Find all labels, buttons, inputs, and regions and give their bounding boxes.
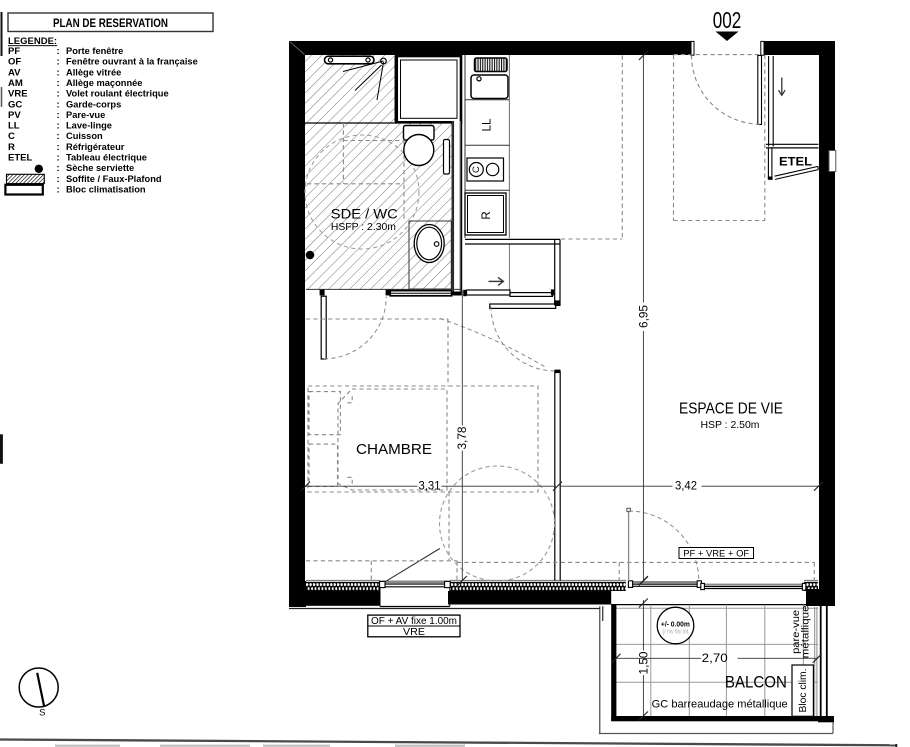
svg-text:3,31: 3,31 bbox=[419, 481, 441, 493]
svg-text:Réfrigérateur: Réfrigérateur bbox=[66, 142, 125, 152]
svg-text:S: S bbox=[39, 708, 45, 719]
svg-text:Allège vitrée: Allège vitrée bbox=[66, 67, 121, 77]
svg-text:BALCON: BALCON bbox=[725, 673, 787, 691]
svg-text:AV: AV bbox=[8, 67, 21, 78]
svg-text:ESPACE DE VIE: ESPACE DE VIE bbox=[679, 401, 783, 418]
svg-text:Lave-linge: Lave-linge bbox=[66, 121, 112, 131]
svg-text:Porte fenêtre: Porte fenêtre bbox=[66, 46, 123, 56]
svg-text:métallique: métallique bbox=[800, 605, 812, 658]
svg-text:VRE: VRE bbox=[403, 627, 425, 638]
svg-text:PV: PV bbox=[8, 110, 21, 121]
svg-text:2,70: 2,70 bbox=[702, 653, 728, 665]
svg-text::: : bbox=[57, 131, 60, 142]
svg-text:Bloc climatisation: Bloc climatisation bbox=[66, 184, 146, 194]
svg-text:GC barreaudage métallique: GC barreaudage métallique bbox=[652, 699, 788, 711]
svg-text::: : bbox=[57, 184, 60, 195]
svg-text:3,42: 3,42 bbox=[675, 481, 697, 493]
svg-text::: : bbox=[57, 99, 60, 110]
svg-text::: : bbox=[57, 110, 60, 121]
svg-text:PLAN DE RESERVATION: PLAN DE RESERVATION bbox=[53, 18, 168, 30]
svg-text:LL: LL bbox=[8, 121, 20, 132]
svg-text::: : bbox=[57, 153, 60, 164]
svg-text:Pare-vue: Pare-vue bbox=[66, 110, 105, 120]
svg-text:PF: PF bbox=[8, 46, 20, 57]
svg-text:VRE: VRE bbox=[8, 89, 28, 100]
svg-text::: : bbox=[57, 142, 60, 153]
svg-text:Cuisson: Cuisson bbox=[66, 131, 103, 141]
svg-text::: : bbox=[57, 67, 60, 78]
svg-text::: : bbox=[57, 121, 60, 132]
svg-text:OF + AV fixe 1.00m: OF + AV fixe 1.00m bbox=[371, 616, 457, 627]
svg-text::: : bbox=[57, 78, 60, 89]
svg-text:6,95: 6,95 bbox=[638, 305, 650, 328]
svg-text:Bloc clim.: Bloc clim. bbox=[797, 669, 809, 713]
svg-text:AM: AM bbox=[8, 78, 23, 89]
svg-text::: : bbox=[57, 163, 60, 174]
svg-text:C: C bbox=[471, 166, 482, 173]
svg-text:002: 002 bbox=[713, 7, 742, 33]
svg-text::: : bbox=[57, 46, 60, 57]
svg-text:+/- 0.00m: +/- 0.00m bbox=[661, 619, 690, 628]
svg-text:C: C bbox=[8, 131, 15, 142]
svg-text:ETEL: ETEL bbox=[8, 153, 32, 164]
svg-text:CHAMBRE: CHAMBRE bbox=[356, 441, 432, 458]
svg-text:GC: GC bbox=[8, 99, 22, 110]
svg-text:Fenêtre ouvrant à la française: Fenêtre ouvrant à la française bbox=[66, 57, 198, 67]
svg-text:3,78: 3,78 bbox=[457, 427, 469, 450]
svg-text:ETEL: ETEL bbox=[779, 155, 812, 169]
svg-text:Tableau électrique: Tableau électrique bbox=[66, 153, 147, 163]
svg-text:Allège maçonnée: Allège maçonnée bbox=[66, 78, 142, 88]
svg-text:Volet roulant électrique: Volet roulant électrique bbox=[66, 89, 169, 99]
svg-text:HSFP : 2.30m: HSFP : 2.30m bbox=[331, 222, 396, 233]
svg-text:LL: LL bbox=[481, 118, 493, 132]
svg-text:HSP : 2.50m: HSP : 2.50m bbox=[701, 419, 760, 431]
svg-text:Soffite / Faux-Plafond: Soffite / Faux-Plafond bbox=[66, 174, 162, 184]
svg-text::: : bbox=[57, 89, 60, 100]
svg-text:R: R bbox=[8, 142, 15, 153]
svg-text:R: R bbox=[481, 211, 493, 219]
svg-text:Garde-corps: Garde-corps bbox=[66, 99, 121, 109]
svg-text:SDE / WC: SDE / WC bbox=[331, 205, 398, 221]
svg-text:1,50: 1,50 bbox=[638, 652, 650, 675]
svg-text:(/ niv fini int: (/ niv fini int bbox=[662, 628, 688, 635]
svg-text:OF: OF bbox=[8, 57, 21, 68]
svg-text::: : bbox=[57, 174, 60, 185]
svg-text::: : bbox=[57, 57, 60, 68]
svg-text:PF + VRE + OF: PF + VRE + OF bbox=[683, 548, 749, 559]
svg-text:Sèche serviette: Sèche serviette bbox=[66, 163, 134, 173]
